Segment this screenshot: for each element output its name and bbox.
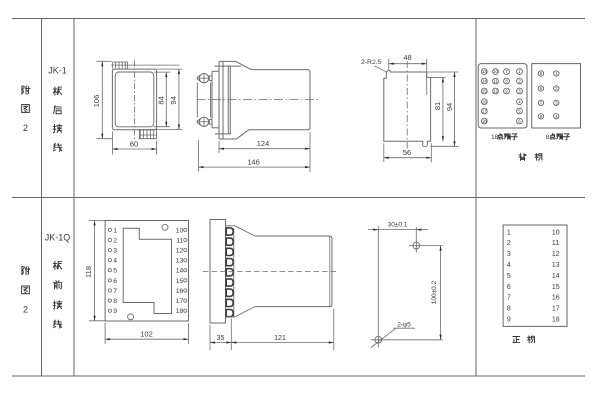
svg-text:146: 146 [247,158,260,167]
svg-text:11: 11 [552,240,559,247]
svg-text:4: 4 [507,262,511,269]
svg-text:106: 106 [92,95,101,108]
svg-text:7: 7 [505,69,508,74]
svg-text:5: 5 [540,71,543,76]
svg-text:2: 2 [507,240,511,247]
svg-text:6: 6 [540,86,543,91]
svg-text:81: 81 [433,102,442,110]
svg-text:15: 15 [482,89,487,94]
svg-text:11: 11 [493,79,498,84]
svg-text:15: 15 [552,284,560,291]
svg-text:16: 16 [176,288,184,295]
svg-text:14: 14 [552,273,560,280]
svg-text:17: 17 [176,298,184,305]
svg-text:35: 35 [217,335,225,342]
svg-text:5: 5 [113,268,117,275]
svg-text:60: 60 [130,140,138,149]
svg-text:124: 124 [257,139,270,148]
svg-text:56: 56 [403,148,411,157]
svg-text:18: 18 [482,119,487,124]
svg-text:18: 18 [552,317,560,324]
svg-text:2: 2 [518,79,521,84]
svg-text:102: 102 [140,330,153,339]
svg-text:9: 9 [113,308,117,315]
svg-text:JK-1Q: JK-1Q [45,233,71,243]
svg-text:14: 14 [176,268,184,275]
svg-text:2: 2 [23,123,28,133]
svg-text:84: 84 [157,96,166,104]
svg-text:13: 13 [482,69,487,74]
svg-text:1: 1 [518,69,521,74]
svg-text:1: 1 [113,227,117,234]
svg-text:8: 8 [505,79,508,84]
svg-text:1: 1 [555,71,558,76]
svg-text:15: 15 [176,278,184,285]
svg-text:18: 18 [491,134,499,141]
svg-text:18: 18 [176,308,184,315]
svg-text:2-R2.5: 2-R2.5 [361,59,382,66]
svg-text:8: 8 [546,134,550,141]
svg-text:6: 6 [518,119,521,124]
svg-text:3: 3 [507,251,511,258]
svg-text:4: 4 [518,99,521,104]
svg-text:5: 5 [507,273,511,280]
svg-text:2: 2 [113,237,117,244]
svg-text:30±0.1: 30±0.1 [388,222,408,229]
svg-text:12: 12 [493,89,498,94]
svg-text:7: 7 [113,288,117,295]
svg-text:3: 3 [518,89,521,94]
svg-text:100±0.2: 100±0.2 [431,280,438,304]
svg-text:4: 4 [555,114,558,119]
svg-text:94: 94 [445,103,454,111]
svg-text:12: 12 [176,248,184,255]
svg-text:14: 14 [482,79,487,84]
svg-text:7: 7 [507,295,511,302]
svg-text:17: 17 [552,306,560,313]
svg-text:12: 12 [552,251,560,258]
svg-text:1: 1 [507,229,511,236]
svg-text:16: 16 [552,295,560,302]
svg-text:9: 9 [505,89,508,94]
svg-text:JK-1: JK-1 [48,66,67,76]
svg-text:11: 11 [176,237,183,244]
svg-text:48: 48 [403,53,411,62]
svg-text:17: 17 [482,109,487,114]
svg-text:8: 8 [507,306,511,313]
svg-text:2: 2 [555,86,558,91]
svg-text:13: 13 [176,258,184,265]
svg-text:5: 5 [518,109,521,114]
svg-text:7: 7 [540,100,543,105]
svg-text:6: 6 [507,284,511,291]
svg-text:10: 10 [493,69,498,74]
svg-text:3: 3 [113,248,117,255]
svg-text:3: 3 [555,100,558,105]
svg-text:6: 6 [113,278,117,285]
svg-text:8: 8 [540,114,543,119]
svg-text:118: 118 [84,266,93,278]
svg-text:94: 94 [169,96,178,104]
svg-text:9: 9 [507,317,511,324]
svg-text:13: 13 [552,262,560,269]
svg-text:121: 121 [274,335,286,342]
svg-text:2: 2 [23,304,28,314]
svg-text:2-φ5: 2-φ5 [397,322,411,329]
svg-text:10: 10 [176,227,184,234]
svg-text:8: 8 [113,298,117,305]
svg-text:4: 4 [113,258,117,265]
svg-text:16: 16 [482,99,487,104]
svg-text:10: 10 [552,229,560,236]
